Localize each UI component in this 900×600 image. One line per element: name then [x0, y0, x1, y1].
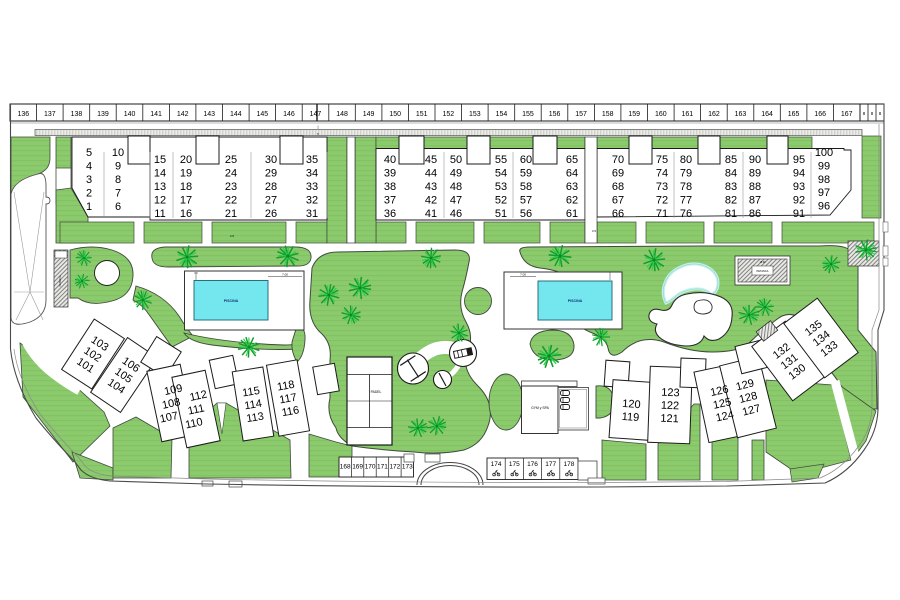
svg-text:8: 8 — [115, 174, 121, 186]
svg-text:9: 9 — [115, 161, 121, 173]
svg-text:178: 178 — [563, 461, 574, 468]
svg-text:165: 165 — [788, 111, 800, 118]
svg-text:162: 162 — [708, 111, 720, 118]
svg-text:45: 45 — [425, 154, 437, 166]
svg-text:53: 53 — [495, 181, 507, 193]
svg-text:93: 93 — [793, 181, 805, 193]
svg-text:43: 43 — [425, 181, 437, 193]
svg-text:71: 71 — [656, 208, 668, 220]
svg-text:140: 140 — [124, 111, 136, 118]
svg-text:80: 80 — [680, 154, 692, 166]
svg-text:66: 66 — [612, 208, 624, 220]
svg-text:121: 121 — [660, 413, 679, 426]
svg-text:70: 70 — [612, 154, 624, 166]
svg-text:95: 95 — [793, 154, 805, 166]
svg-text:122: 122 — [661, 400, 680, 413]
svg-text:92: 92 — [793, 195, 805, 207]
svg-text:91: 91 — [793, 208, 805, 220]
svg-text:86: 86 — [749, 208, 761, 220]
svg-text:6: 6 — [115, 201, 121, 213]
svg-text:57: 57 — [520, 195, 532, 207]
svg-text:41: 41 — [425, 208, 437, 220]
svg-text:83: 83 — [725, 181, 737, 193]
svg-text:88: 88 — [749, 181, 761, 193]
svg-text:7.00: 7.00 — [520, 273, 526, 277]
svg-text:63: 63 — [566, 181, 578, 193]
svg-text:145: 145 — [257, 111, 269, 118]
svg-text:PETANCA: PETANCA — [59, 275, 62, 287]
svg-text:153: 153 — [469, 111, 481, 118]
svg-text:33: 33 — [306, 181, 318, 193]
svg-text:100: 100 — [815, 147, 833, 159]
svg-text:PETANCA: PETANCA — [756, 269, 768, 273]
svg-text:34: 34 — [306, 168, 318, 180]
svg-text:141: 141 — [150, 111, 162, 118]
svg-text:99: 99 — [818, 160, 830, 172]
svg-text:170: 170 — [365, 464, 376, 471]
svg-text:55: 55 — [495, 154, 507, 166]
svg-text:120: 120 — [622, 398, 641, 411]
svg-text:24: 24 — [225, 168, 237, 180]
svg-text:10: 10 — [112, 147, 124, 159]
svg-text:22: 22 — [225, 195, 237, 207]
svg-text:PISCINA: PISCINA — [224, 299, 239, 303]
svg-text:168: 168 — [340, 464, 351, 471]
svg-text:79: 79 — [680, 168, 692, 180]
svg-text:136: 136 — [17, 111, 29, 118]
svg-text:51: 51 — [495, 208, 507, 220]
svg-text:144: 144 — [230, 111, 242, 118]
svg-text:157: 157 — [575, 111, 587, 118]
svg-text:56: 56 — [520, 208, 532, 220]
svg-text:152: 152 — [442, 111, 454, 118]
svg-text:4: 4 — [86, 161, 92, 173]
svg-text:58: 58 — [520, 181, 532, 193]
svg-text:50: 50 — [450, 154, 462, 166]
svg-text:3: 3 — [86, 174, 92, 186]
svg-text:161: 161 — [682, 111, 694, 118]
svg-text:176: 176 — [527, 461, 538, 468]
svg-text:82: 82 — [725, 195, 737, 207]
svg-text:PISCINA: PISCINA — [568, 299, 583, 303]
svg-text:36: 36 — [384, 208, 396, 220]
svg-text:5: 5 — [86, 147, 92, 159]
svg-text:151: 151 — [416, 111, 428, 118]
svg-text:74: 74 — [656, 168, 668, 180]
svg-text:52: 52 — [495, 195, 507, 207]
svg-text:156: 156 — [549, 111, 561, 118]
svg-text:85: 85 — [725, 154, 737, 166]
svg-text:173: 173 — [402, 464, 413, 471]
svg-text:25: 25 — [225, 154, 237, 166]
svg-text:54: 54 — [495, 168, 507, 180]
svg-text:18: 18 — [180, 181, 192, 193]
svg-text:65: 65 — [566, 154, 578, 166]
svg-text:49: 49 — [450, 168, 462, 180]
svg-text:143: 143 — [203, 111, 215, 118]
svg-text:160: 160 — [655, 111, 667, 118]
svg-text:73: 73 — [656, 181, 668, 193]
svg-text:28: 28 — [265, 181, 277, 193]
svg-text:38: 38 — [384, 181, 396, 193]
svg-text:119: 119 — [621, 411, 639, 424]
svg-text:29: 29 — [265, 168, 277, 180]
svg-text:26: 26 — [265, 208, 277, 220]
svg-text:137: 137 — [44, 111, 56, 118]
svg-text:147: 147 — [310, 111, 322, 118]
svg-text:123: 123 — [661, 387, 680, 400]
svg-text:35: 35 — [306, 154, 318, 166]
svg-text:14: 14 — [154, 168, 166, 180]
svg-text:154: 154 — [496, 111, 508, 118]
svg-text:31: 31 — [306, 208, 318, 220]
svg-text:17: 17 — [180, 195, 192, 207]
svg-text:16: 16 — [180, 208, 192, 220]
svg-text:75: 75 — [656, 154, 668, 166]
svg-text:158: 158 — [602, 111, 614, 118]
svg-text:77: 77 — [680, 195, 692, 207]
svg-text:62: 62 — [566, 195, 578, 207]
svg-text:64: 64 — [566, 168, 578, 180]
svg-text:12: 12 — [154, 195, 166, 207]
svg-text:4.5: 4.5 — [230, 234, 235, 238]
svg-text:167: 167 — [841, 111, 853, 118]
svg-text:7: 7 — [115, 188, 121, 200]
svg-text:174: 174 — [491, 461, 502, 468]
svg-text:30: 30 — [265, 154, 277, 166]
svg-text:96: 96 — [818, 201, 830, 213]
svg-text:68: 68 — [612, 181, 624, 193]
svg-text:1: 1 — [86, 201, 92, 213]
svg-text:139: 139 — [97, 111, 109, 118]
svg-text:39: 39 — [384, 168, 396, 180]
svg-text:169: 169 — [352, 464, 363, 471]
svg-text:32: 32 — [306, 195, 318, 207]
svg-text:90: 90 — [749, 154, 761, 166]
svg-text:40: 40 — [384, 154, 396, 166]
svg-text:94: 94 — [793, 168, 805, 180]
svg-text:84: 84 — [725, 168, 737, 180]
svg-text:37: 37 — [384, 195, 396, 207]
svg-text:171: 171 — [377, 464, 388, 471]
svg-text:146: 146 — [283, 111, 295, 118]
svg-text:159: 159 — [628, 111, 640, 118]
svg-text:7.00: 7.00 — [282, 273, 288, 277]
svg-text:87: 87 — [749, 195, 761, 207]
svg-text:|: | — [317, 124, 318, 129]
svg-text:97: 97 — [818, 187, 830, 199]
svg-text:11: 11 — [154, 208, 165, 220]
svg-text:19: 19 — [180, 168, 192, 180]
svg-text:21: 21 — [225, 208, 237, 220]
svg-text:172: 172 — [389, 464, 400, 471]
svg-text:166: 166 — [814, 111, 826, 118]
svg-text:67: 67 — [612, 195, 624, 207]
svg-text:4.5: 4.5 — [592, 229, 597, 233]
svg-text:76: 76 — [680, 208, 692, 220]
svg-text:163: 163 — [735, 111, 747, 118]
svg-text:150: 150 — [389, 111, 401, 118]
svg-text:177: 177 — [545, 461, 556, 468]
svg-text:142: 142 — [177, 111, 189, 118]
svg-text:155: 155 — [522, 111, 534, 118]
svg-text:138: 138 — [71, 111, 83, 118]
svg-text:59: 59 — [520, 168, 532, 180]
svg-text:23: 23 — [225, 181, 237, 193]
svg-text:61: 61 — [566, 208, 578, 220]
svg-text:27: 27 — [265, 195, 277, 207]
svg-text:78: 78 — [680, 181, 692, 193]
svg-text:13: 13 — [154, 181, 166, 193]
svg-text:89: 89 — [749, 168, 761, 180]
svg-text:48: 48 — [450, 181, 462, 193]
svg-text:98: 98 — [818, 174, 830, 186]
svg-text:69: 69 — [612, 168, 624, 180]
svg-text:149: 149 — [363, 111, 375, 118]
svg-text:175: 175 — [509, 461, 520, 468]
svg-text:PADEL: PADEL — [371, 390, 382, 394]
svg-text:15: 15 — [154, 154, 166, 166]
svg-text:148: 148 — [336, 111, 348, 118]
svg-text:47: 47 — [450, 195, 462, 207]
svg-text:42: 42 — [425, 195, 437, 207]
svg-text:20: 20 — [180, 154, 192, 166]
svg-text:GYM y SPA: GYM y SPA — [531, 406, 550, 410]
svg-text:60: 60 — [520, 154, 532, 166]
svg-text:72: 72 — [656, 195, 668, 207]
svg-text:81: 81 — [725, 208, 737, 220]
svg-text:2: 2 — [86, 188, 92, 200]
svg-text:164: 164 — [761, 111, 773, 118]
svg-text:44: 44 — [425, 168, 437, 180]
svg-text:15.00: 15.00 — [760, 261, 767, 264]
svg-text:46: 46 — [450, 208, 462, 220]
